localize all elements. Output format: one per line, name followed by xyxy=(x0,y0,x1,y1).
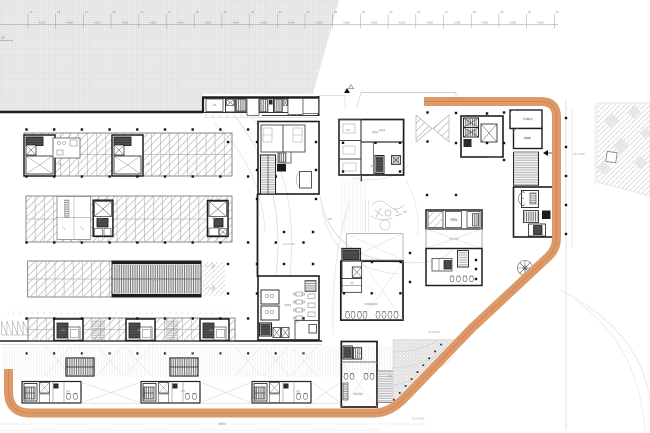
svg-text:GL+6.000: GL+6.000 xyxy=(573,152,585,156)
svg-text:1F: 1F xyxy=(1,36,5,40)
svg-text:4,500: 4,500 xyxy=(482,20,489,24)
svg-text:4,500: 4,500 xyxy=(343,20,350,24)
svg-text:4,500: 4,500 xyxy=(371,20,378,24)
svg-text:4,500: 4,500 xyxy=(426,20,433,24)
svg-text:4,500: 4,500 xyxy=(288,20,295,24)
svg-text:4,500: 4,500 xyxy=(260,20,267,24)
svg-text:4,500: 4,500 xyxy=(94,20,101,24)
svg-text:4,500: 4,500 xyxy=(537,20,544,24)
svg-text:4,500: 4,500 xyxy=(39,20,46,24)
svg-text:4,500: 4,500 xyxy=(122,20,129,24)
svg-text:GL+6.000: GL+6.000 xyxy=(428,330,440,334)
svg-text:4,500: 4,500 xyxy=(177,20,184,24)
svg-text:4,500: 4,500 xyxy=(454,20,461,24)
svg-text:4,500: 4,500 xyxy=(205,20,212,24)
svg-text:GL+6.000: GL+6.000 xyxy=(412,417,424,421)
svg-text:4,500: 4,500 xyxy=(316,20,323,24)
svg-text:4,500: 4,500 xyxy=(232,20,239,24)
svg-text:GL+6.000: GL+6.000 xyxy=(283,242,295,246)
svg-text:4,500: 4,500 xyxy=(509,20,516,24)
svg-text:GL+6.000: GL+6.000 xyxy=(488,155,500,159)
svg-text:4,500: 4,500 xyxy=(399,20,406,24)
svg-text:4,500: 4,500 xyxy=(149,20,156,24)
svg-text:4,500: 4,500 xyxy=(66,20,73,24)
